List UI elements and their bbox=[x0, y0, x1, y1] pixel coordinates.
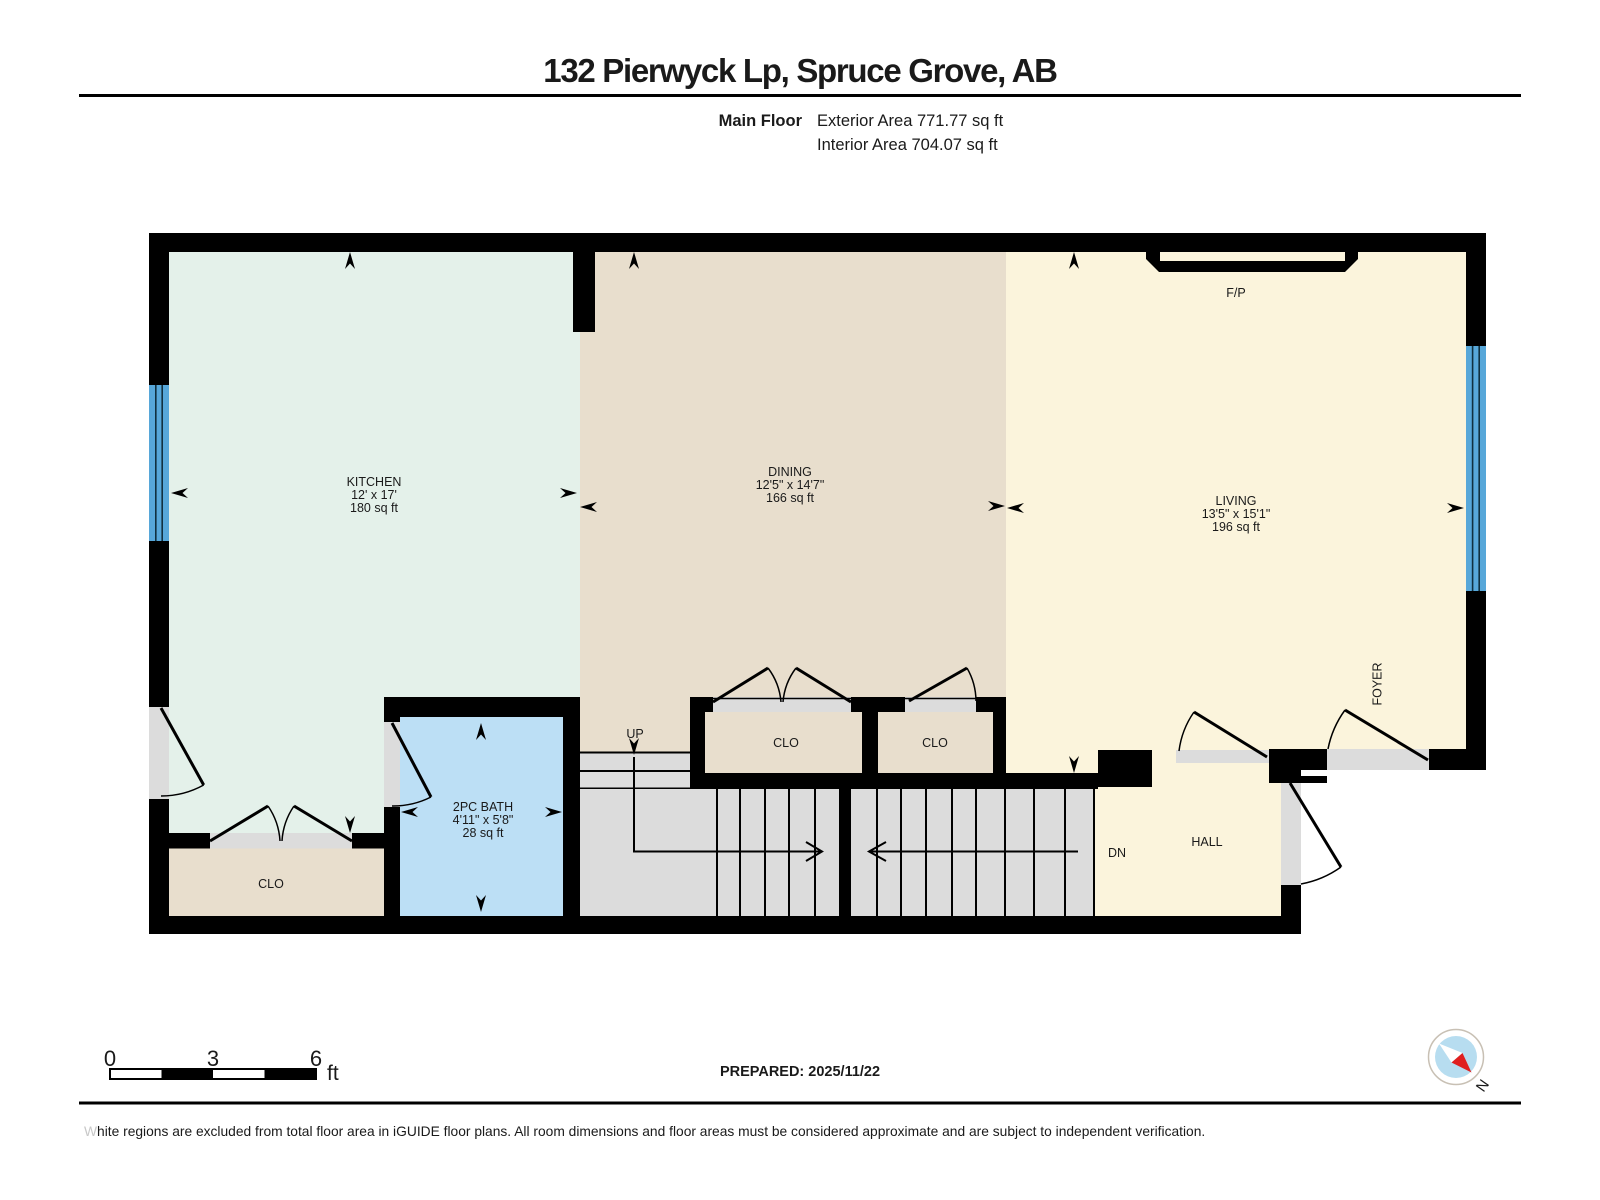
svg-text:HALL: HALL bbox=[1191, 835, 1222, 849]
svg-text:Interior Area 704.07 sq ft: Interior Area 704.07 sq ft bbox=[817, 136, 998, 154]
svg-text:DN: DN bbox=[1108, 846, 1126, 860]
svg-text:CLO: CLO bbox=[773, 736, 799, 750]
svg-text:LIVING: LIVING bbox=[1216, 494, 1257, 508]
svg-text:2PC BATH: 2PC BATH bbox=[453, 800, 513, 814]
svg-text:3: 3 bbox=[207, 1046, 219, 1071]
svg-text:CLO: CLO bbox=[258, 877, 284, 891]
svg-text:FOYER: FOYER bbox=[1370, 662, 1384, 705]
svg-text:UP: UP bbox=[626, 727, 643, 741]
svg-text:132 Pierwyck Lp, Spruce Grove,: 132 Pierwyck Lp, Spruce Grove, AB bbox=[543, 52, 1057, 89]
svg-text:KITCHEN: KITCHEN bbox=[347, 475, 402, 489]
svg-text:CLO: CLO bbox=[922, 736, 948, 750]
svg-text:12' x 17': 12' x 17' bbox=[351, 488, 397, 502]
svg-text:12'5" x 14'7": 12'5" x 14'7" bbox=[756, 478, 825, 492]
svg-text:28 sq ft: 28 sq ft bbox=[463, 826, 505, 840]
svg-text:ft: ft bbox=[327, 1062, 339, 1085]
svg-text:13'5" x 15'1": 13'5" x 15'1" bbox=[1202, 507, 1271, 521]
svg-text:166 sq ft: 166 sq ft bbox=[766, 491, 814, 505]
svg-text:F/P: F/P bbox=[1226, 286, 1245, 300]
svg-text:DINING: DINING bbox=[768, 465, 812, 479]
svg-text:6: 6 bbox=[310, 1046, 322, 1071]
svg-text:White regions are excluded fro: White regions are excluded from total fl… bbox=[84, 1124, 1205, 1139]
svg-text:4'11" x 5'8": 4'11" x 5'8" bbox=[453, 813, 514, 827]
svg-text:180 sq ft: 180 sq ft bbox=[350, 501, 398, 515]
svg-text:Exterior Area 771.77 sq ft: Exterior Area 771.77 sq ft bbox=[817, 112, 1004, 130]
svg-text:PREPARED: 2025/11/22: PREPARED: 2025/11/22 bbox=[720, 1064, 880, 1080]
svg-text:196 sq ft: 196 sq ft bbox=[1212, 520, 1260, 534]
svg-text:0: 0 bbox=[104, 1046, 116, 1071]
svg-text:Main Floor: Main Floor bbox=[719, 112, 803, 130]
